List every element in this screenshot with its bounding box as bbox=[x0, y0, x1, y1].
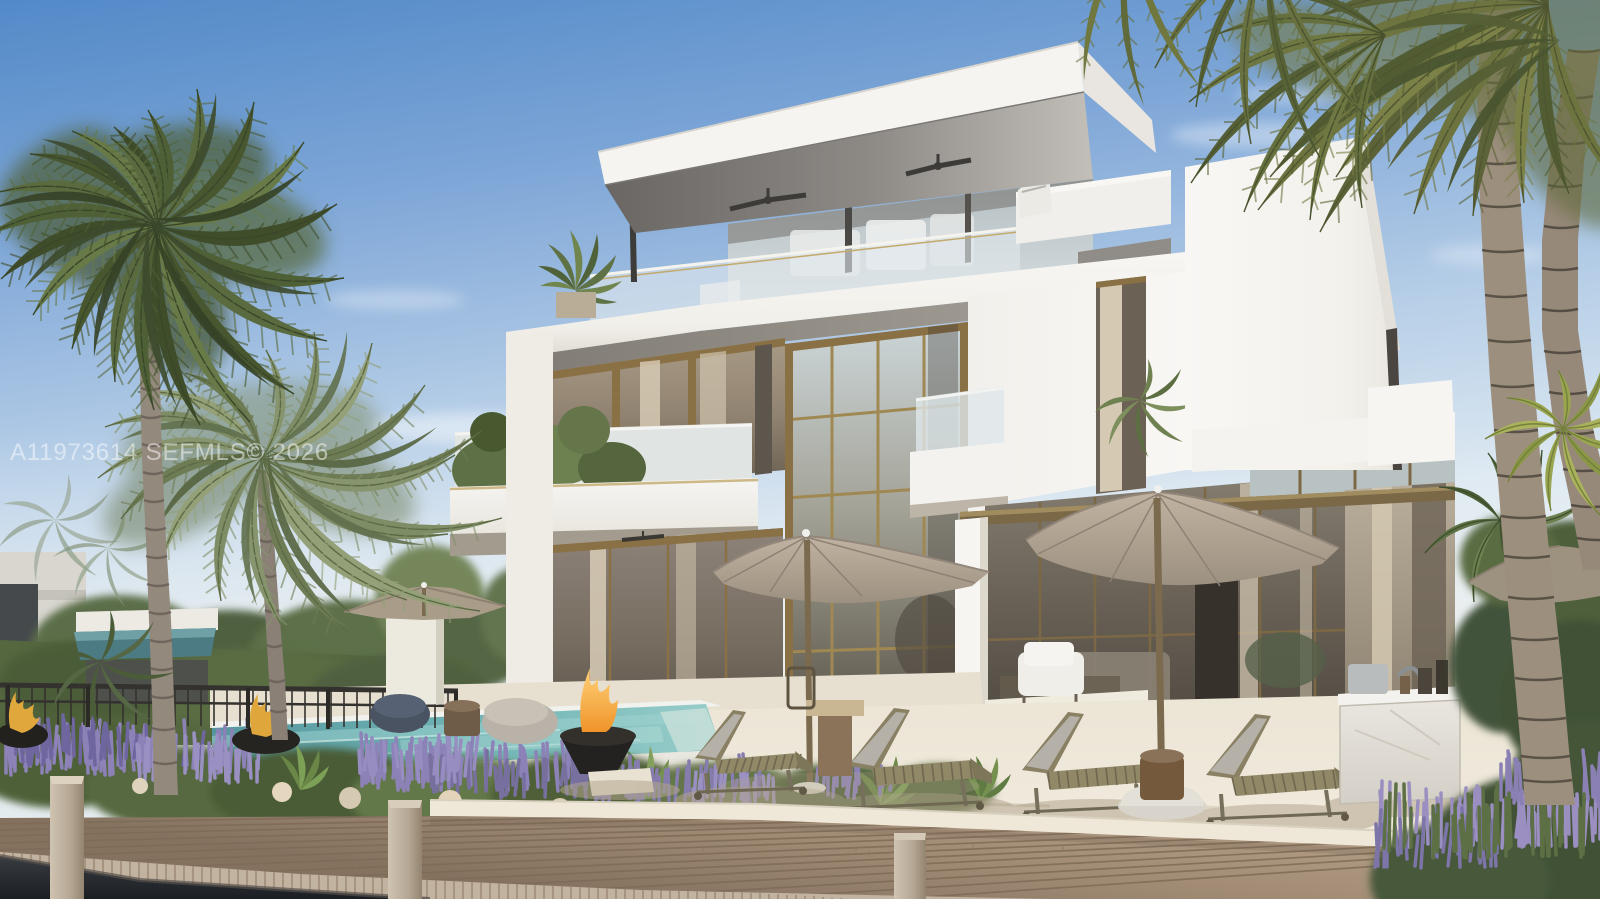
svg-text:A11973614 SEFMLS© 2026: A11973614 SEFMLS© 2026 bbox=[10, 439, 329, 466]
